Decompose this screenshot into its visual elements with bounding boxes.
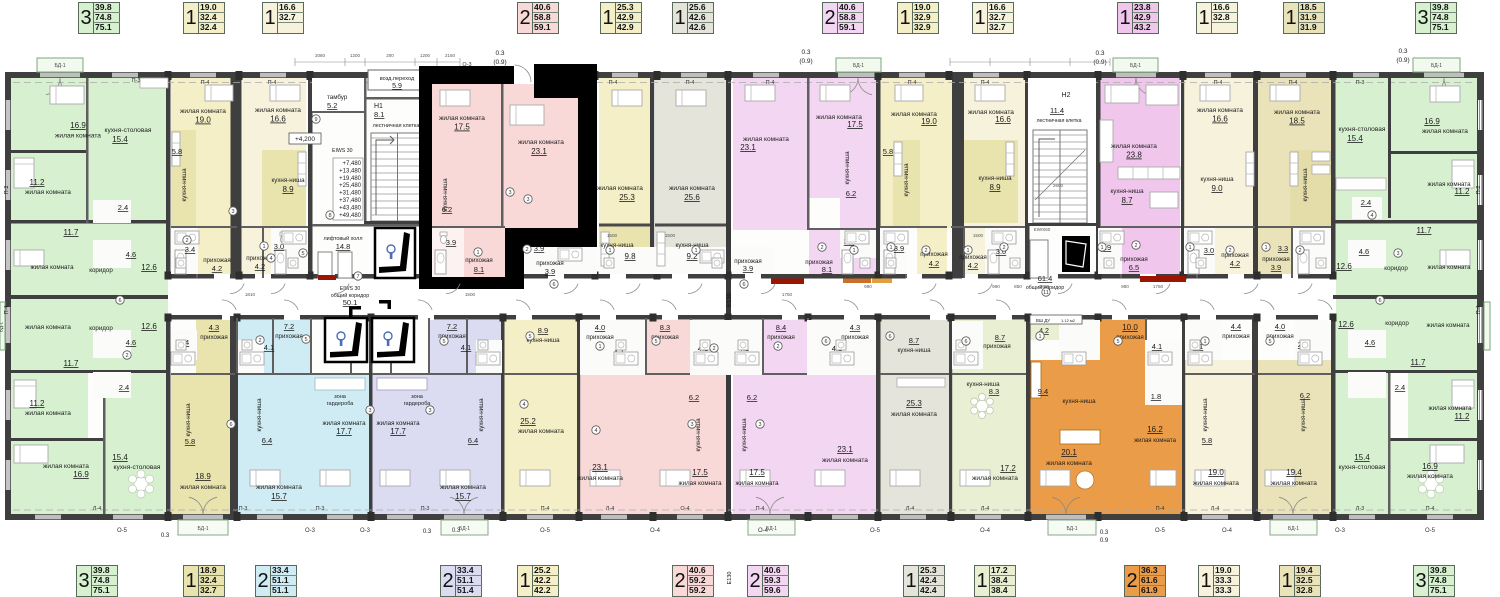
svg-text:прихожая: прихожая [586,334,614,341]
svg-text:О-3: О-3 [1335,528,1346,534]
svg-text:2150: 2150 [445,53,456,58]
svg-text:EIWS 30: EIWS 30 [332,148,353,154]
svg-text:3.9: 3.9 [1271,263,1281,272]
svg-text:3: 3 [231,209,234,215]
svg-text:5: 5 [528,334,531,340]
svg-text:16.6: 16.6 [995,115,1011,124]
svg-text:18.5: 18.5 [1289,117,1305,126]
svg-text:О-5: О-5 [117,528,128,534]
svg-text:2.4: 2.4 [118,203,128,212]
svg-text:О-3: О-3 [462,62,471,68]
svg-text:15.4: 15.4 [1347,134,1363,143]
svg-text:П-3: П-3 [132,78,141,84]
svg-text:+13,480: +13,480 [339,168,362,174]
svg-text:жилая комната: жилая комната [678,480,722,487]
svg-text:0.3: 0.3 [1100,530,1109,536]
svg-text:прихожая: прихожая [203,257,231,264]
svg-text:5.8: 5.8 [1202,436,1212,445]
svg-text:О-5: О-5 [1425,528,1436,534]
svg-text:кухня-ниша: кухня-ниша [600,242,634,249]
svg-text:23.1: 23.1 [592,463,608,472]
svg-text:БД-1: БД-1 [54,63,65,69]
svg-text:лестничная клетка: лестничная клетка [373,123,420,129]
svg-text:жилая комната: жилая комната [822,457,868,464]
svg-text:+31,480: +31,480 [339,191,362,197]
svg-text:О-3: О-3 [305,528,316,534]
svg-text:кухня-столовая: кухня-столовая [1339,464,1386,471]
svg-text:коридор: коридор [89,267,113,274]
svg-text:6: 6 [888,334,891,340]
svg-text:жилая комната: жилая комната [1428,405,1472,412]
svg-text:жилая комната: жилая комната [30,264,74,271]
svg-text:Л-4: Л-4 [981,506,990,512]
svg-text:980: 980 [1121,284,1129,289]
svg-text:жилая комната: жилая комната [972,475,1018,482]
svg-text:9.8: 9.8 [624,252,636,261]
svg-text:15.4: 15.4 [1354,453,1370,462]
svg-text:5: 5 [1268,339,1271,345]
svg-text:П-3: П-3 [1356,80,1365,86]
svg-text:4.4: 4.4 [1231,322,1241,331]
svg-text:П-4: П-4 [541,506,550,512]
svg-text:+43,480: +43,480 [339,205,362,211]
svg-text:19.0: 19.0 [1208,468,1224,477]
svg-text:кухня-столовая: кухня-столовая [114,464,161,471]
svg-text:2: 2 [1134,243,1137,249]
svg-text:12.6: 12.6 [141,263,157,272]
svg-text:О-4: О-4 [758,528,769,534]
svg-text:прихожая: прихожая [767,334,795,341]
svg-text:5: 5 [1116,339,1119,345]
svg-text:11.7: 11.7 [64,228,80,237]
svg-text:6: 6 [964,339,967,345]
svg-text:11.7: 11.7 [1411,358,1427,367]
svg-text:6.4: 6.4 [262,436,272,445]
svg-text:61.4: 61.4 [1038,274,1053,283]
svg-text:11.4: 11.4 [1050,106,1064,115]
svg-text:11.2: 11.2 [1455,187,1471,196]
svg-text:4: 4 [522,402,525,408]
svg-text:П-4: П-4 [686,80,695,86]
svg-text:О-5: О-5 [540,528,551,534]
svg-text:23.1: 23.1 [531,147,547,156]
svg-text:5: 5 [304,337,307,343]
svg-text:4: 4 [269,256,272,262]
svg-text:25.6: 25.6 [684,193,700,202]
svg-text:О-4: О-4 [980,528,991,534]
svg-text:прихожая: прихожая [1222,333,1250,340]
svg-text:11.2: 11.2 [30,178,46,187]
svg-text:кухня-ниша: кухня-ниша [978,175,1012,182]
svg-text:жилая комната: жилая комната [25,410,71,417]
svg-text:2.4: 2.4 [119,383,129,392]
svg-text:8.7: 8.7 [995,333,1005,342]
svg-text:3: 3 [1396,251,1399,257]
svg-text:4.0: 4.0 [595,323,605,332]
svg-text:П-4: П-4 [1476,306,1482,315]
svg-text:БД-1: БД-1 [459,526,470,532]
svg-text:О-5: О-5 [870,528,881,534]
svg-text:8.9: 8.9 [989,183,1001,192]
svg-text:тамбур: тамбур [327,94,348,101]
svg-text:0.3: 0.3 [1398,48,1407,55]
svg-text:жилая комната: жилая комната [891,411,937,418]
svg-text:прихожая: прихожая [200,334,228,341]
svg-text:6.2: 6.2 [846,189,856,198]
svg-text:4.6: 4.6 [126,338,136,347]
svg-text:3.9: 3.9 [534,244,544,253]
svg-text:11: 11 [1043,290,1049,296]
svg-text:4.3: 4.3 [209,323,219,332]
svg-text:25.3: 25.3 [906,399,922,408]
svg-text:2: 2 [776,344,779,350]
svg-text:3.4: 3.4 [185,245,195,254]
svg-text:11.2: 11.2 [30,399,46,408]
svg-text:5.2: 5.2 [327,101,337,110]
svg-text:кухня-ниша: кухня-ниша [903,163,910,197]
svg-text:15.4: 15.4 [112,135,128,144]
svg-text:4.1: 4.1 [461,343,471,352]
svg-text:0.9: 0.9 [1100,538,1109,544]
svg-text:прихожая: прихожая [1120,256,1148,263]
svg-text:10.0: 10.0 [1122,323,1138,332]
svg-text:990: 990 [992,284,1000,289]
svg-text:0.3: 0.3 [161,533,170,539]
svg-text:жилая комната: жилая комната [439,115,485,122]
svg-text:3.9: 3.9 [743,264,753,273]
svg-text:8.3: 8.3 [989,387,999,396]
svg-text:О-3: О-3 [360,528,371,534]
svg-text:17.7: 17.7 [336,427,352,436]
svg-text:3: 3 [690,422,693,428]
svg-text:1: 1 [262,244,265,250]
svg-text:5: 5 [654,339,657,345]
svg-text:4.6: 4.6 [1359,247,1369,256]
svg-text:прихожая: прихожая [275,333,303,340]
svg-text:6: 6 [824,339,827,345]
svg-text:БД-1: БД-1 [1288,526,1299,532]
svg-text:Л-4: Л-4 [93,506,102,512]
svg-text:кухня-ниша: кухня-ниша [181,168,188,202]
svg-text:жилая комната: жилая комната [180,108,226,115]
svg-text:8.4: 8.4 [776,323,786,332]
svg-text:5.8: 5.8 [883,147,893,156]
svg-text:4.2: 4.2 [255,262,265,271]
svg-text:+7,480: +7,480 [342,161,361,167]
svg-text:коридор: коридор [89,325,113,332]
svg-text:кухня-ниша: кухня-ниша [1302,168,1309,202]
svg-text:17.2: 17.2 [1000,464,1016,473]
svg-text:кухня-ниша: кухня-ниша [256,398,263,432]
svg-text:7.2: 7.2 [284,322,294,331]
svg-text:1.12 м2: 1.12 м2 [1061,318,1076,323]
svg-text:Л-3: Л-3 [1356,506,1365,512]
svg-text:0.3: 0.3 [495,50,504,57]
svg-text:0.3: 0.3 [452,528,461,534]
svg-text:17.5: 17.5 [847,120,863,129]
svg-text:лестничная клетка: лестничная клетка [1036,118,1081,124]
svg-text:1810: 1810 [245,292,256,297]
svg-text:П-4: П-4 [1214,80,1223,86]
svg-text:2: 2 [185,238,188,244]
svg-text:6: 6 [118,298,121,304]
svg-text:8.7: 8.7 [1121,196,1133,205]
svg-text:Л-4: Л-4 [906,506,915,512]
svg-text:жилая комната: жилая комната [669,185,715,192]
svg-text:1: 1 [1038,334,1041,340]
svg-text:23.1: 23.1 [740,143,756,152]
svg-text:1: 1 [608,248,611,254]
svg-text:П-2: П-2 [4,186,10,195]
svg-text:16.6: 16.6 [1212,115,1228,124]
svg-text:жилая комната: жилая комната [180,484,226,491]
svg-text:2: 2 [712,346,715,352]
svg-text:кухня-ниша: кухня-ниша [844,151,851,185]
svg-text:6: 6 [552,282,555,288]
svg-text:2: 2 [125,353,128,359]
svg-text:жилая комната: жилая комната [597,185,643,192]
svg-text:гардероба: гардероба [404,401,432,407]
svg-text:25.3: 25.3 [619,193,635,202]
svg-text:О-4: О-4 [650,528,661,534]
svg-text:5.8: 5.8 [185,437,195,446]
svg-text:16.9: 16.9 [1422,462,1438,471]
svg-text:П-4: П-4 [609,80,618,86]
svg-text:1500: 1500 [465,292,476,297]
svg-text:15.7: 15.7 [455,492,471,501]
svg-text:15.4: 15.4 [112,453,128,462]
svg-text:6.5: 6.5 [1129,263,1139,272]
svg-text:лифтовый холл: лифтовый холл [324,235,363,242]
svg-text:4.1: 4.1 [1152,342,1162,351]
svg-text:жилая комната: жилая комната [55,133,101,140]
svg-text:4.6: 4.6 [1365,338,1375,347]
svg-text:2: 2 [258,338,261,344]
svg-text:6.2: 6.2 [689,393,699,402]
svg-text:БД-1: БД-1 [0,322,4,332]
svg-text:жилая комната: жилая комната [1197,107,1243,114]
svg-text:0.3: 0.3 [1095,50,1104,57]
svg-text:прихожая: прихожая [1221,252,1249,259]
svg-text:4.2: 4.2 [1230,259,1240,268]
svg-text:1750: 1750 [1153,284,1164,289]
svg-text:жилая комната: жилая комната [1407,473,1453,480]
svg-text:коридор: коридор [1384,265,1408,272]
svg-text:16.6: 16.6 [270,115,286,124]
svg-text:5: 5 [442,339,445,345]
svg-text:кухня-ниша: кухня-ниша [1062,398,1096,405]
svg-text:2.4: 2.4 [1361,198,1371,207]
svg-text:1: 1 [1100,245,1103,251]
svg-text:жилая комната: жилая комната [1274,109,1320,116]
svg-text:4.2: 4.2 [929,259,939,268]
svg-text:+49,480: +49,480 [339,213,362,219]
svg-text:прихожая: прихожая [959,254,987,261]
svg-text:1: 1 [1264,245,1267,251]
svg-text:кухня-ниша: кухня-ниша [1200,176,1234,183]
svg-text:3: 3 [368,408,371,414]
svg-text:жилая комната: жилая комната [1422,128,1468,135]
svg-text:жилая комната: жилая комната [440,484,486,491]
svg-text:9: 9 [314,117,317,123]
svg-text:8.3: 8.3 [660,323,670,332]
svg-text:жилая комната: жилая комната [255,107,301,114]
svg-text:1500: 1500 [973,233,984,238]
svg-text:17.5: 17.5 [692,468,708,477]
svg-text:кухня-столовая: кухня-столовая [1339,126,1386,133]
svg-text:жилая комната: жилая комната [518,139,564,146]
svg-text:БД-1: БД-1 [1431,63,1442,69]
svg-text:4: 4 [594,428,597,434]
svg-text:зона: зона [411,394,424,400]
svg-text:БД-1: БД-1 [197,526,208,532]
svg-text:(0.9): (0.9) [799,58,812,65]
svg-text:3: 3 [428,408,431,414]
svg-text:жилая комната: жилая комната [1134,438,1176,444]
svg-text:кухня-ниша: кухня-ниша [897,347,931,354]
svg-text:жилая комната: жилая комната [43,463,89,470]
svg-text:4.2: 4.2 [212,264,222,273]
svg-text:12.6: 12.6 [141,322,157,331]
svg-text:5: 5 [301,251,304,257]
svg-text:1.8: 1.8 [1151,392,1161,401]
svg-text:1200: 1200 [350,53,361,58]
svg-text:5.8: 5.8 [172,147,182,156]
svg-text:гардероба: гардероба [327,401,355,407]
svg-text:П-4: П-4 [4,306,10,315]
svg-text:П-4: П-4 [981,80,990,86]
svg-text:жилая комната: жилая комната [322,420,366,427]
svg-text:1: 1 [889,245,892,251]
svg-text:4.0: 4.0 [1275,322,1285,331]
svg-text:19.0: 19.0 [921,117,937,126]
svg-text:жилая комната: жилая комната [256,484,302,491]
svg-text:жилая комната: жилая комната [376,420,420,427]
svg-text:8.7: 8.7 [909,336,919,345]
svg-text:О-4: О-4 [1222,528,1233,534]
svg-text:4: 4 [1370,213,1373,219]
svg-text:4.3: 4.3 [850,323,860,332]
svg-text:зона: зона [334,394,347,400]
svg-text:3.9: 3.9 [446,238,456,247]
svg-text:жилая комната: жилая комната [1193,480,1239,487]
svg-text:О-4: О-4 [680,506,689,512]
svg-text:(0.9): (0.9) [1396,57,1409,64]
svg-text:6: 6 [1378,298,1381,304]
svg-text:3: 3 [526,197,529,203]
svg-text:8: 8 [328,213,331,219]
svg-text:17.7: 17.7 [390,427,406,436]
svg-text:8.9: 8.9 [282,185,294,194]
svg-text:4.2: 4.2 [968,261,978,270]
svg-text:П-3: П-3 [316,506,325,512]
svg-text:16.9: 16.9 [1424,117,1440,126]
svg-text:11.7: 11.7 [1417,226,1433,235]
svg-text:2060: 2060 [315,53,326,58]
svg-text:6.2: 6.2 [747,393,757,402]
svg-text:жилая комната: жилая комната [735,480,779,487]
svg-text:жилая комната: жилая комната [1111,143,1157,150]
svg-text:2: 2 [1298,248,1301,254]
svg-text:4.6: 4.6 [126,250,136,259]
svg-text:1500: 1500 [665,233,676,238]
svg-text:прихожая: прихожая [1262,256,1290,263]
svg-text:2: 2 [525,247,528,253]
svg-text:19.0: 19.0 [195,116,211,125]
svg-text:3: 3 [508,190,511,196]
svg-text:жилая комната: жилая комната [1426,322,1470,329]
svg-text:2600: 2600 [1053,183,1064,188]
svg-text:кухня-ниша: кухня-ниша [478,398,485,432]
svg-text:8.1: 8.1 [474,265,484,274]
svg-text:850: 850 [1014,284,1022,289]
svg-text:прихожая: прихожая [465,257,493,264]
svg-text:1: 1 [1188,245,1191,251]
svg-text:кухня-ниша: кухня-ниша [741,418,748,452]
svg-text:8.9: 8.9 [538,326,548,335]
svg-text:H2: H2 [1062,92,1071,99]
svg-text:7.2: 7.2 [447,322,457,331]
svg-text:16.9: 16.9 [73,470,89,479]
svg-text:25.2: 25.2 [520,417,536,426]
svg-text:3.3: 3.3 [1278,244,1288,253]
svg-text:П-4: П-4 [1156,506,1165,512]
svg-text:6.2: 6.2 [442,205,452,214]
svg-text:1: 1 [852,248,855,254]
svg-text:П-4: П-4 [766,80,775,86]
svg-text:0.3: 0.3 [801,49,810,56]
svg-text:23.8: 23.8 [1126,151,1142,160]
svg-text:прихожая: прихожая [983,343,1011,350]
svg-text:20.1: 20.1 [1061,448,1077,457]
svg-text:П-4: П-4 [756,506,765,512]
svg-text:+4,200: +4,200 [295,136,315,143]
svg-text:кухня-столовая: кухня-столовая [105,127,152,134]
svg-text:1: 1 [1203,339,1206,345]
svg-text:П-4: П-4 [1289,80,1298,86]
svg-text:+25,480: +25,480 [339,183,362,189]
svg-text:6.2: 6.2 [1300,391,1310,400]
svg-text:ВШ ДУ: ВШ ДУ [1036,318,1050,323]
svg-text:кухня-ниша: кухня-ниша [1300,398,1307,432]
svg-text:19.4: 19.4 [1286,468,1302,477]
svg-text:H1: H1 [374,103,383,110]
svg-text:5.9: 5.9 [392,83,402,90]
svg-text:1: 1 [694,248,697,254]
svg-text:9.4: 9.4 [1038,387,1048,396]
svg-text:3.0: 3.0 [1204,246,1214,255]
svg-text:6.4: 6.4 [468,436,478,445]
svg-text:П-4: П-4 [201,80,210,86]
svg-text:+37,480: +37,480 [339,198,362,204]
svg-text:12.6: 12.6 [1336,262,1352,271]
svg-text:(0.9): (0.9) [493,59,506,66]
svg-text:жилая комната: жилая комната [518,428,564,435]
svg-text:200: 200 [386,53,394,58]
svg-text:17.5: 17.5 [454,123,470,132]
svg-text:7: 7 [356,274,359,280]
svg-text:23.1: 23.1 [837,445,853,454]
svg-text:8.1: 8.1 [374,110,384,119]
svg-text:18.9: 18.9 [195,472,211,481]
svg-text:1: 1 [598,344,601,350]
svg-text:(0.9): (0.9) [1093,59,1106,66]
svg-text:П-4: П-4 [268,80,277,86]
svg-text:+19,480: +19,480 [339,176,362,182]
svg-text:0.3: 0.3 [423,529,432,535]
svg-text:16.2: 16.2 [1147,425,1163,434]
svg-text:6: 6 [229,422,232,428]
